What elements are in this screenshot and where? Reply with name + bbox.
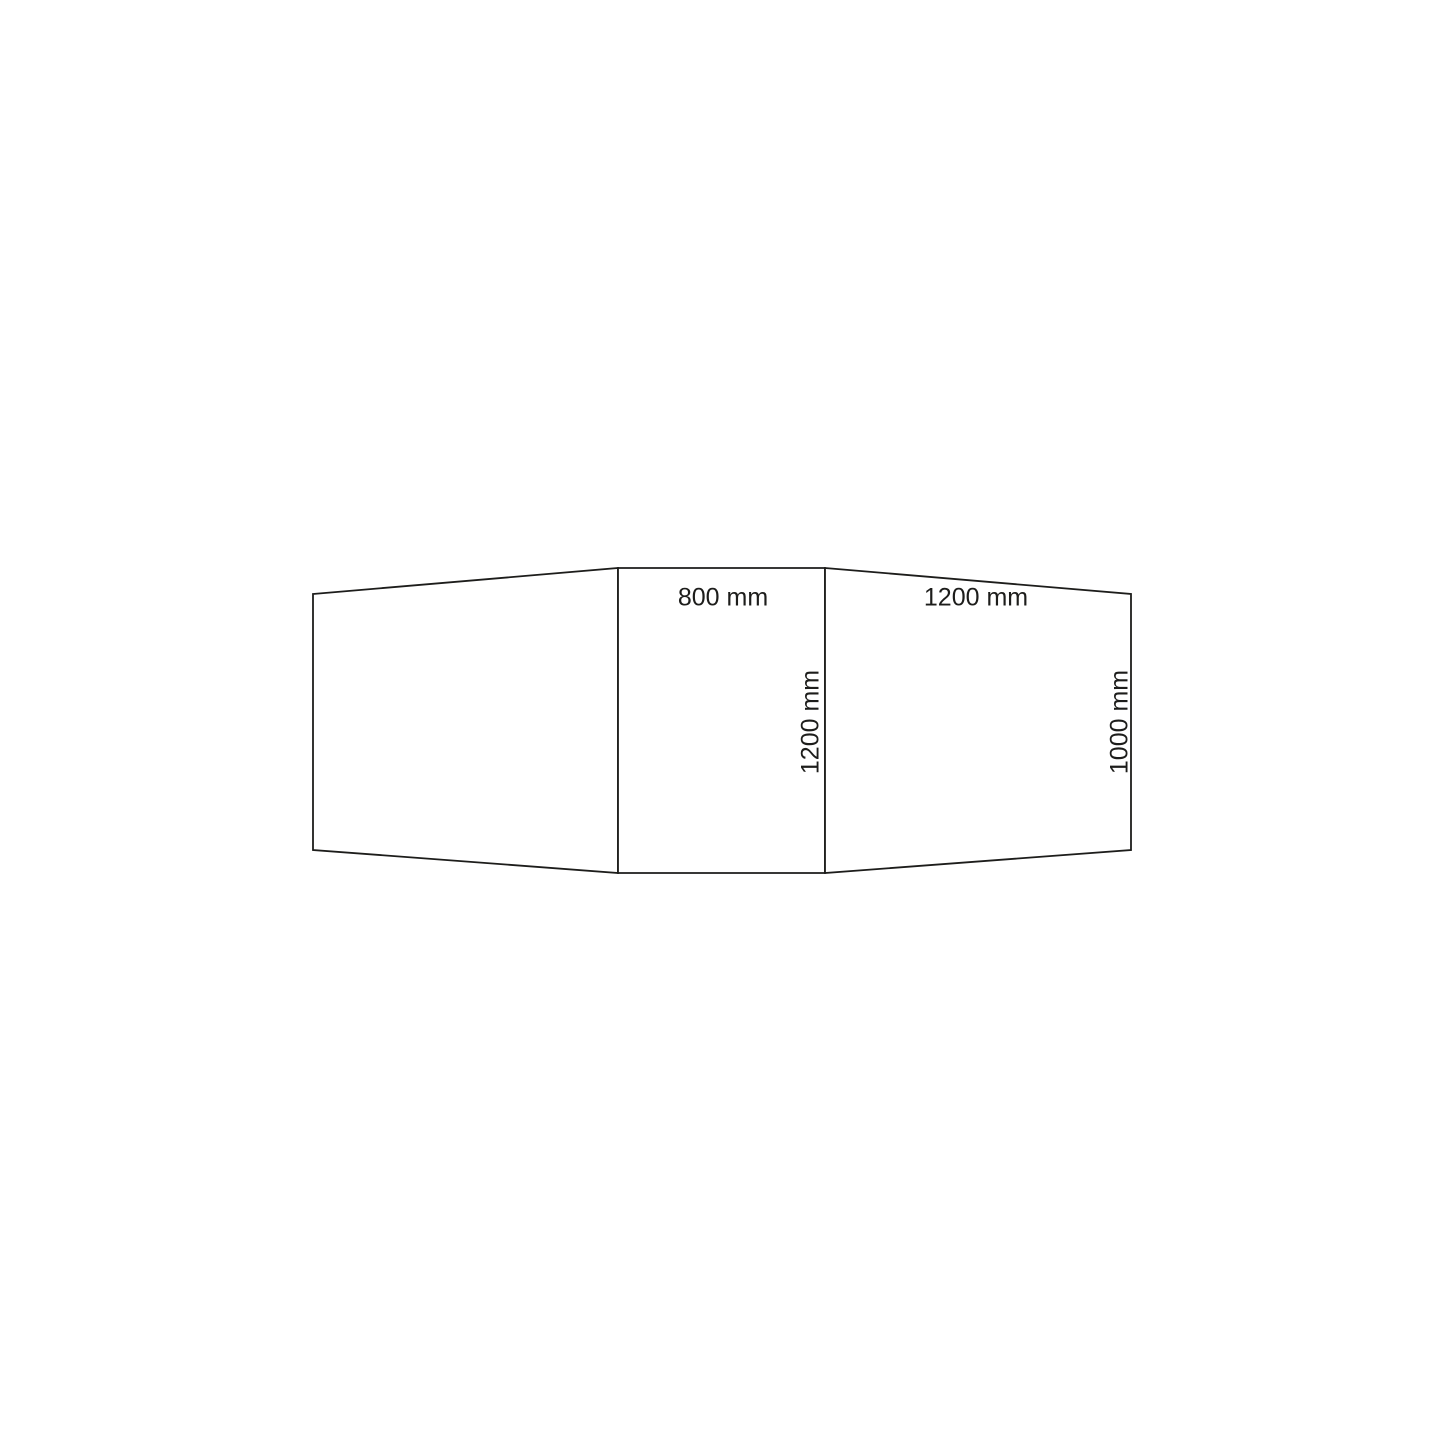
right-panel [825, 568, 1131, 873]
center-panel [618, 568, 825, 873]
panel-outline-drawing [0, 0, 1445, 1445]
diagram-canvas: 800 mm1200 mm1200 mm1000 mm [0, 0, 1445, 1445]
left-panel [313, 568, 618, 873]
